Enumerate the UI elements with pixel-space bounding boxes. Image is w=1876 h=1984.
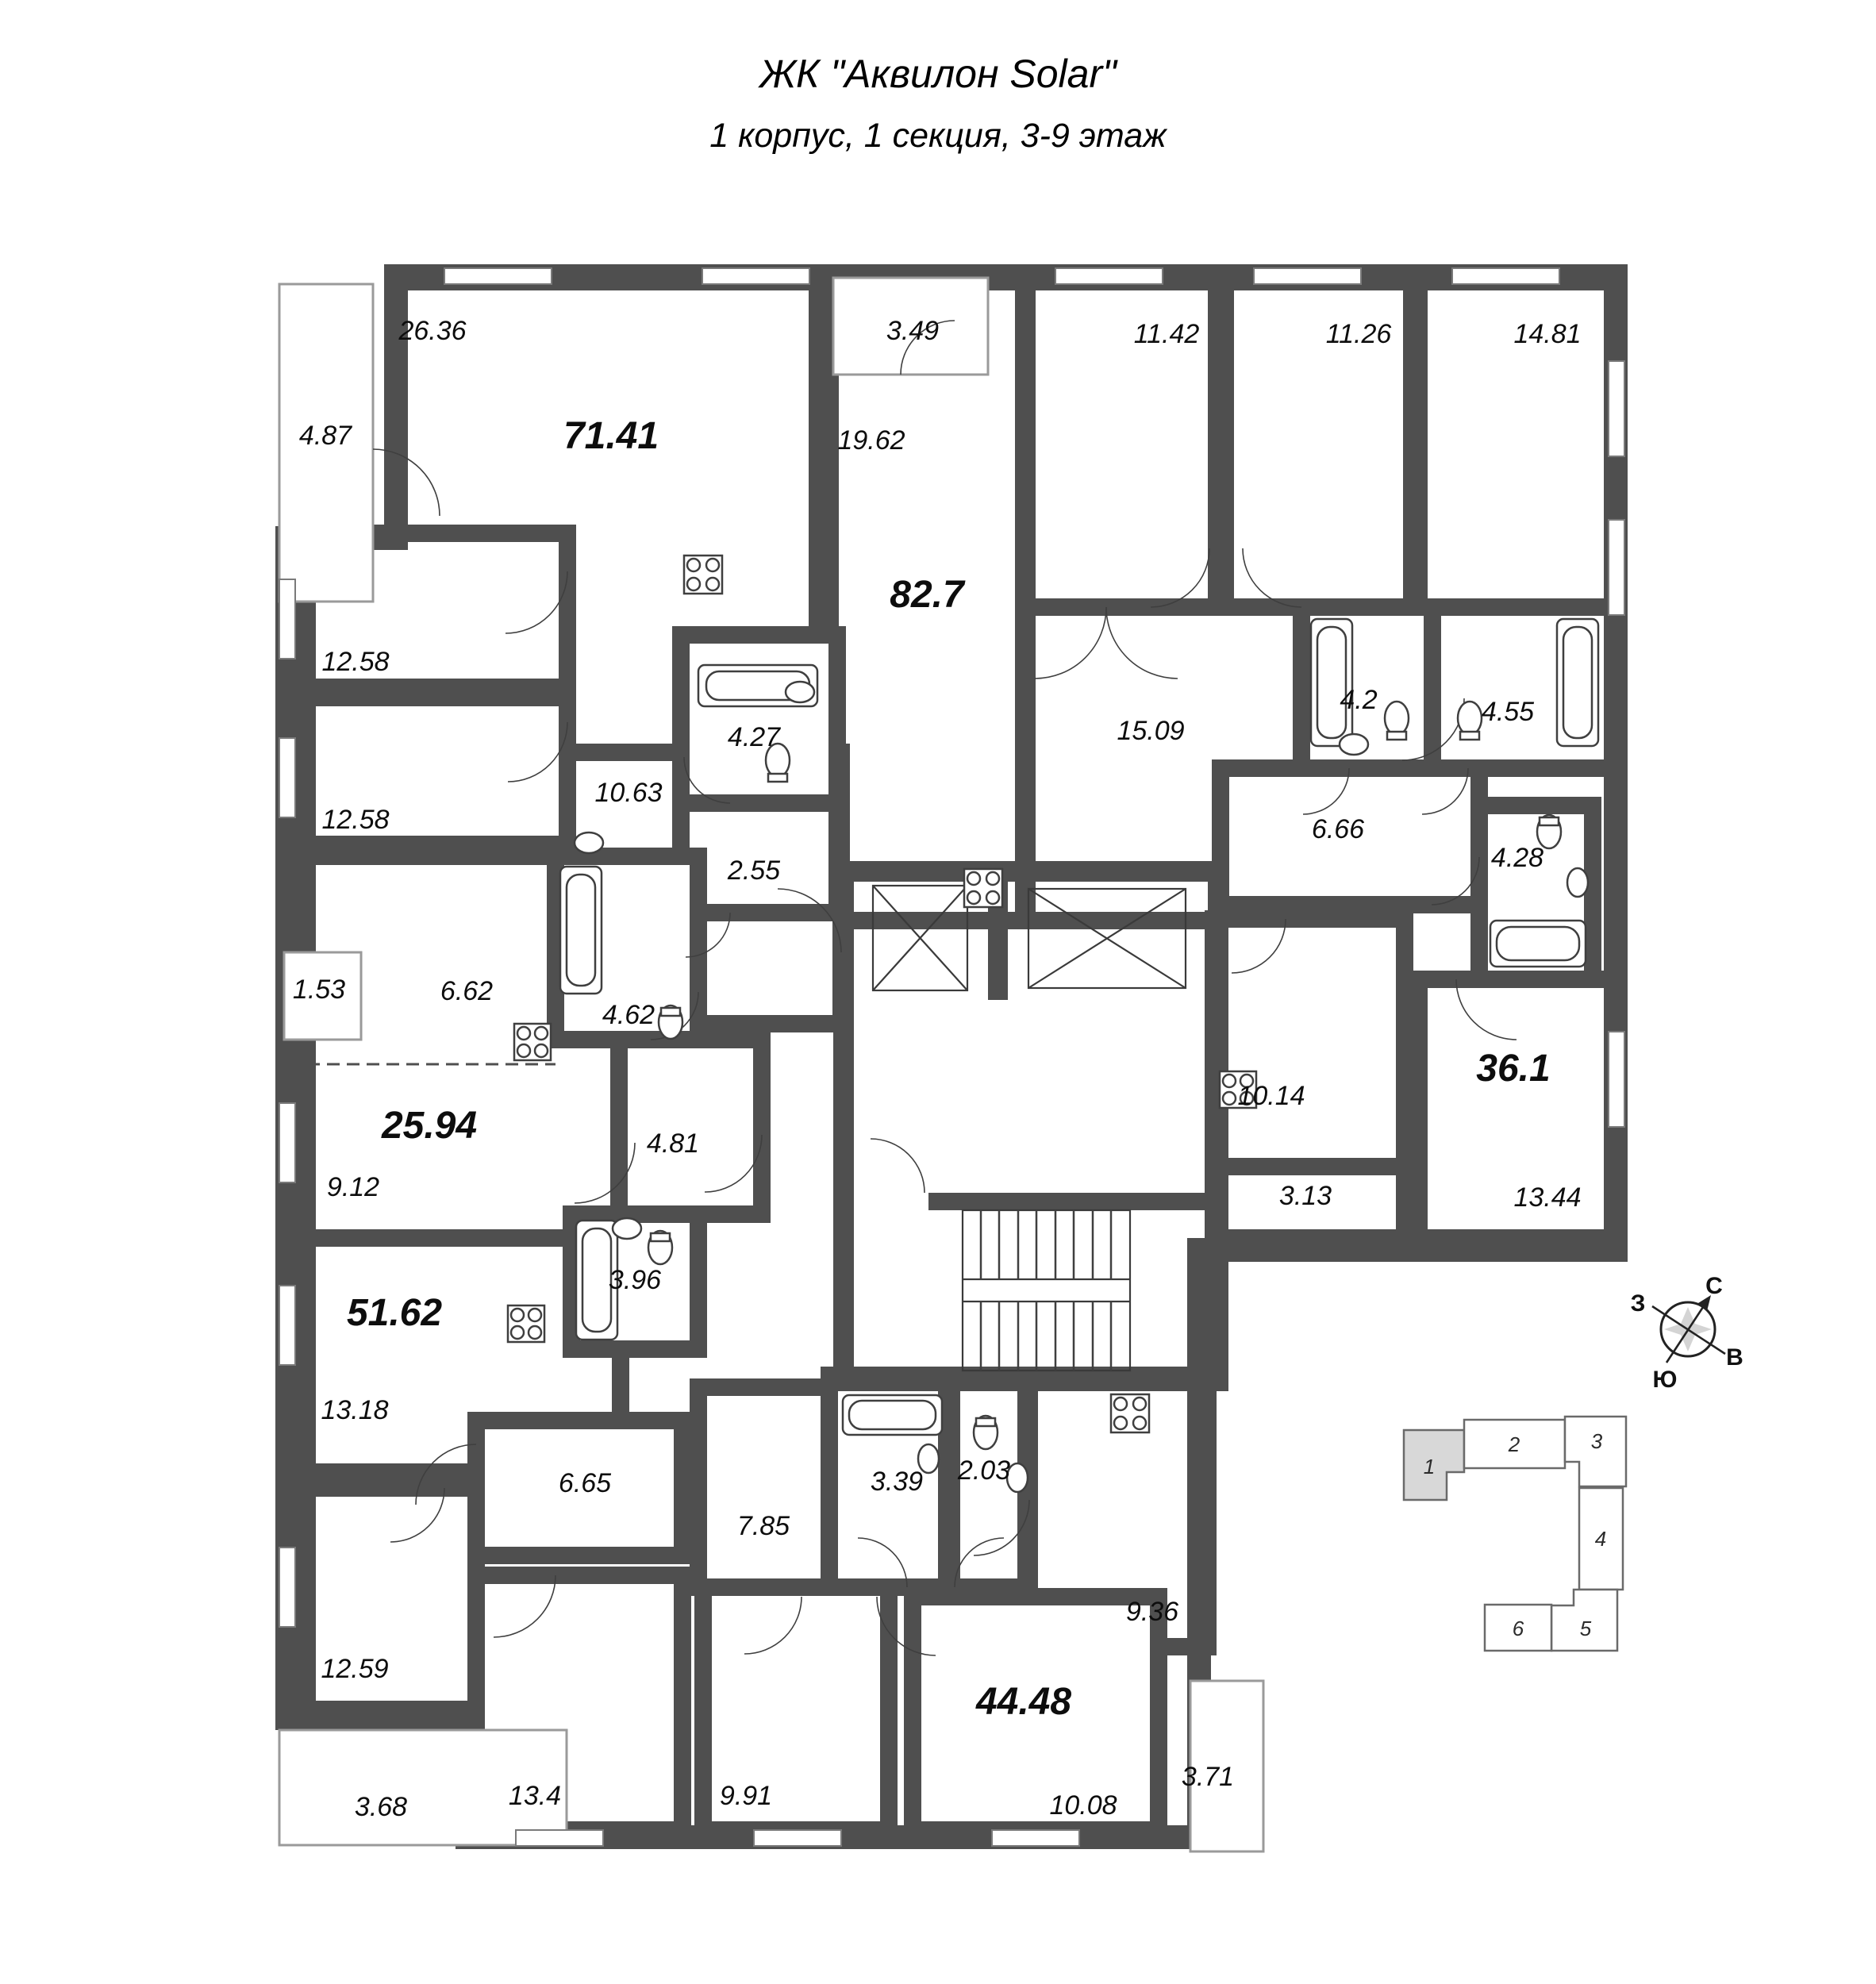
title-line1: ЖК "Аквилон Solar": [757, 52, 1118, 96]
room-area-label: 4.62: [602, 1000, 655, 1030]
minimap-block-number: 1: [1424, 1455, 1435, 1478]
room-area-label: 3.49: [886, 316, 939, 346]
rooms: [307, 282, 1613, 1830]
room-area-label: 3.71: [1182, 1762, 1234, 1792]
room-area-label: 1.53: [293, 975, 345, 1005]
room-area-label: 3.13: [1279, 1181, 1332, 1211]
room-area-label: 15.09: [1117, 716, 1184, 746]
hall-7-85: [698, 1387, 829, 1587]
floorplan-page: ЖК "Аквилон Solar" 1 корпус, 1 секция, 3…: [0, 0, 1876, 1984]
room-area-label: 4.28: [1491, 843, 1543, 873]
room-area-label: 13.4: [509, 1781, 561, 1811]
room-area-label: 4.87: [299, 421, 352, 451]
room-area-label: 10.14: [1237, 1081, 1305, 1111]
compass-rose: С В Ю З: [1631, 1273, 1743, 1393]
room-area-label: 3.39: [871, 1467, 923, 1497]
minimap-block-number: 4: [1595, 1527, 1606, 1551]
room-area-label: 44.48: [975, 1681, 1071, 1723]
compass-east: В: [1726, 1344, 1743, 1371]
building-minimap: 123456: [1404, 1417, 1626, 1651]
minimap-block-number: 2: [1508, 1432, 1520, 1456]
room-area-label: 4.2: [1340, 685, 1377, 715]
room-area-label: 36.1: [1476, 1048, 1550, 1090]
room-area-label: 25.94: [381, 1105, 477, 1147]
minimap-block-number: 6: [1513, 1617, 1524, 1640]
room-area-label: 2.55: [727, 856, 780, 886]
room-area-label: 3.96: [609, 1265, 661, 1295]
room-area-label: 26.36: [398, 316, 466, 346]
room-area-label: 11.26: [1326, 319, 1392, 349]
room-area-label: 12.58: [321, 805, 389, 835]
room-area-label: 71.41: [563, 415, 659, 457]
room-area-label: 6.66: [1312, 814, 1364, 844]
room-4-27: [681, 635, 837, 803]
floorplan-svg: ЖК "Аквилон Solar" 1 корпус, 1 секция, 3…: [0, 0, 1876, 1984]
room-area-label: 12.59: [321, 1654, 388, 1684]
page-title: ЖК "Аквилон Solar" 1 корпус, 1 секция, 3…: [709, 52, 1168, 155]
compass-north: С: [1705, 1273, 1723, 1299]
room-area-label: 6.65: [559, 1468, 611, 1498]
staircase: [963, 1210, 1130, 1371]
room-area-label: 10.63: [594, 778, 662, 808]
room-area-label: 11.42: [1134, 319, 1200, 349]
room-area-label: 12.58: [321, 647, 389, 677]
room-10-14: [1213, 919, 1405, 1167]
room-area-label: 4.81: [647, 1128, 699, 1159]
room-area-label: 10.08: [1049, 1790, 1117, 1821]
title-line2: 1 корпус, 1 секция, 3-9 этаж: [709, 117, 1168, 155]
room-area-label: 9.91: [720, 1781, 772, 1811]
minimap-block-number: 5: [1580, 1617, 1592, 1640]
room-area-label: 6.62: [440, 976, 493, 1006]
room-area-label: 2.03: [957, 1455, 1010, 1486]
room-area-label: 14.81: [1513, 319, 1581, 349]
room-area-label: 9.36: [1126, 1597, 1178, 1627]
minimap-block-number: 3: [1591, 1429, 1603, 1453]
compass-south: Ю: [1653, 1367, 1678, 1393]
room-area-label: 4.27: [728, 722, 781, 752]
room-area-label: 82.7: [890, 574, 966, 616]
room-area-label: 7.85: [737, 1511, 790, 1541]
room-area-label: 13.18: [321, 1395, 388, 1425]
compass-west: З: [1631, 1290, 1646, 1317]
room-area-label: 9.12: [327, 1172, 379, 1202]
room-area-label: 13.44: [1513, 1182, 1581, 1213]
room-area-label: 19.62: [837, 425, 905, 456]
hall-4-81: [619, 1040, 762, 1214]
room-area-label: 51.62: [347, 1292, 442, 1334]
room-area-label: 3.68: [355, 1792, 407, 1822]
room-area-label: 4.55: [1482, 697, 1534, 727]
